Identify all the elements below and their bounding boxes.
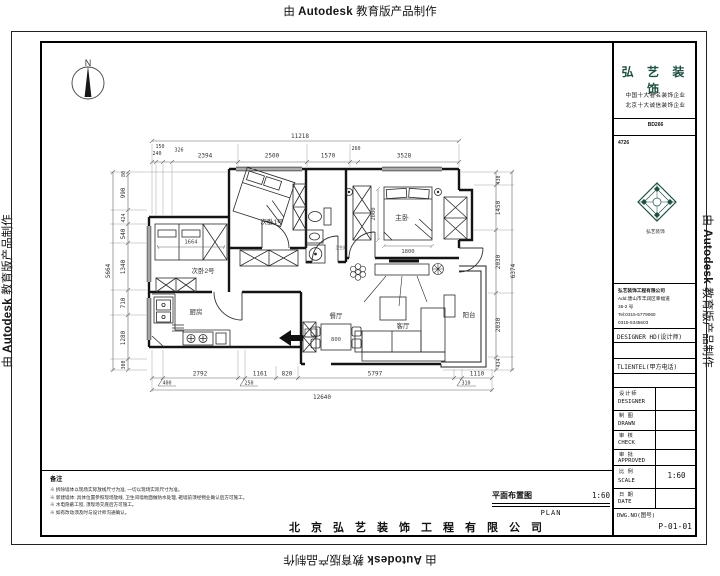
svg-text:1161: 1161: [253, 371, 268, 378]
svg-text:1340: 1340: [120, 259, 127, 274]
kitchen-counter: [152, 294, 230, 347]
company-address: 弘艺装饰工程有限公司 Add:唐山市丰润区幸福道 36-2 号 Tel:0315…: [618, 287, 695, 327]
watermark-brand: Autodesk: [298, 6, 353, 18]
svg-text:3528: 3528: [397, 153, 412, 160]
client-line: TLIENTEL(甲方电话): [617, 362, 677, 371]
svg-text:240: 240: [152, 151, 161, 157]
cert-number-1: BD266: [614, 122, 697, 128]
label-balcony: 阳台: [463, 310, 476, 319]
svg-text:80: 80: [121, 171, 127, 177]
floor-plan-canvas: N 11218 150 240 326 2394 2500 1570 260 3…: [40, 41, 612, 470]
double-rule: [492, 503, 610, 507]
drawing-subtitle: PLAN: [492, 509, 610, 517]
toilet-icon: [309, 208, 332, 225]
note-item: ※ 如有改动须及时与设计师沟通确认。: [50, 509, 302, 517]
svg-text:424: 424: [121, 213, 127, 222]
balcony-cabinet: [444, 295, 455, 317]
washbasin-icon: [306, 230, 323, 243]
label-master: 主卧: [395, 213, 409, 222]
note-item: ※ 水电隐蔽工程, 须现场交底后方可施工。: [50, 501, 302, 509]
tv-unit: [364, 260, 429, 307]
brand-diamond-logo: [635, 180, 679, 224]
dim-top-total: 11218: [291, 133, 309, 140]
wardrobe-master-left: [353, 186, 371, 240]
extension-lines: [110, 144, 514, 392]
brand-subtitle-2: 北京十大诚信装饰企业: [614, 101, 697, 109]
dim-bed-length: 2000: [371, 207, 377, 220]
drawing-title: 平面布置图: [492, 490, 532, 501]
svg-text:150: 150: [155, 144, 164, 150]
watermark-prefix: 由: [283, 6, 295, 18]
svg-text:1110: 1110: [470, 371, 485, 378]
svg-text:2500: 2500: [265, 153, 280, 160]
svg-text:1280: 1280: [120, 330, 127, 345]
watermark-top: 由 Autodesk 教育版产品制作: [0, 3, 720, 19]
svg-text:2792: 2792: [193, 371, 208, 378]
wardrobe-bedroom1: [293, 184, 306, 230]
plant-icon: [350, 264, 365, 281]
svg-text:300: 300: [121, 360, 127, 369]
footer-separator-line: [40, 470, 612, 471]
north-label: N: [85, 58, 92, 68]
dimension-lines: [111, 139, 514, 392]
svg-text:250: 250: [244, 381, 253, 387]
dim-wardrobe: 1664: [184, 240, 198, 246]
dim-table: 800: [331, 337, 341, 343]
svg-text:2030: 2030: [495, 254, 502, 269]
label-bath: 卫生间: [335, 245, 347, 250]
drawing-title-block: 平面布置图 1:60 PLAN: [492, 490, 610, 517]
svg-text:2394: 2394: [198, 153, 213, 160]
ceiling-light-icon: [433, 264, 444, 275]
stove: [183, 332, 213, 345]
label-dining: 餐厅: [330, 311, 344, 320]
dim-bed-width: 1800: [401, 249, 414, 255]
label-kitchen: 厨房: [190, 307, 203, 316]
closet-master-right: [444, 197, 467, 239]
note-item: ※ 拆除墙体以现场实际放线尺寸为准, 一切以现场实际尺寸为准。: [50, 486, 302, 494]
svg-text:326: 326: [174, 148, 183, 154]
company-name: 北京弘艺装饰工程有限公司: [289, 519, 553, 535]
dim-bottom-total: 12640: [313, 394, 331, 401]
dimension-texts: 11218 150 240 326 2394 2500 1570 260 352…: [105, 133, 517, 401]
dim-right-total: 6374: [510, 263, 517, 278]
notes-title: 备注: [50, 474, 302, 483]
sofa: [355, 308, 445, 361]
logo-caption: 弘艺装饰: [614, 229, 697, 235]
title-block-column-divider: [655, 387, 656, 508]
svg-text:260: 260: [351, 146, 360, 152]
doors: [214, 221, 483, 320]
dim-left-total: 5664: [105, 263, 112, 278]
svg-text:1450: 1450: [495, 200, 502, 215]
svg-text:540: 540: [120, 228, 127, 239]
north-arrow-icon: N: [72, 58, 104, 99]
watermark-bottom: 由 Autodesk 教育版产品制作: [0, 552, 720, 568]
svg-text:710: 710: [120, 297, 127, 308]
svg-text:310: 310: [461, 381, 470, 387]
label-living: 客厅: [397, 321, 411, 330]
furniture: [152, 167, 467, 361]
title-block: 弘 艺 装 饰 中国十大著名装饰企业 北京十大诚信装饰企业 BD266 4726…: [612, 41, 697, 537]
svg-text:400: 400: [162, 381, 171, 387]
watermark-suffix: 教育版产品制作: [356, 6, 437, 18]
scale-value: 1:60: [656, 471, 697, 480]
svg-text:430: 430: [496, 175, 502, 184]
note-item: ※ 新建墙体: 具体位置参照现场放线, 卫生间墙地面做防水处理, 砸墙前须经物业…: [50, 494, 302, 502]
svg-text:820: 820: [282, 371, 293, 378]
bed-bedroom1: [233, 167, 295, 226]
brand-subtitle-1: 中国十大著名装饰企业: [614, 91, 697, 99]
svg-text:990: 990: [120, 187, 127, 198]
dwg-no-value: P-01-01: [658, 522, 692, 531]
svg-text:5797: 5797: [368, 371, 383, 378]
drawing-scale: 1:60: [592, 491, 610, 500]
washing-machine-icon: [306, 245, 325, 263]
svg-text:434: 434: [496, 358, 502, 367]
svg-text:1570: 1570: [321, 153, 336, 160]
coffee-table: [380, 297, 406, 320]
cert-number-2: 4726: [618, 140, 629, 146]
designer-line: DESIGNER HD(设计师): [617, 332, 682, 341]
svg-text:2030: 2030: [495, 317, 502, 332]
label-bedroom2: 次卧2号: [191, 266, 215, 275]
label-bedroom1: 次卧1号: [260, 217, 284, 226]
notes-block: 备注 ※ 拆除墙体以现场实际放线尺寸为准, 一切以现场实际尺寸为准。 ※ 新建墙…: [50, 474, 302, 516]
dwg-no-label: DWG.NO(图号): [617, 511, 655, 519]
drawing-sheet: 由 Autodesk 教育版产品制作 由 Autodesk 教育版产品制作 由 …: [0, 0, 720, 576]
